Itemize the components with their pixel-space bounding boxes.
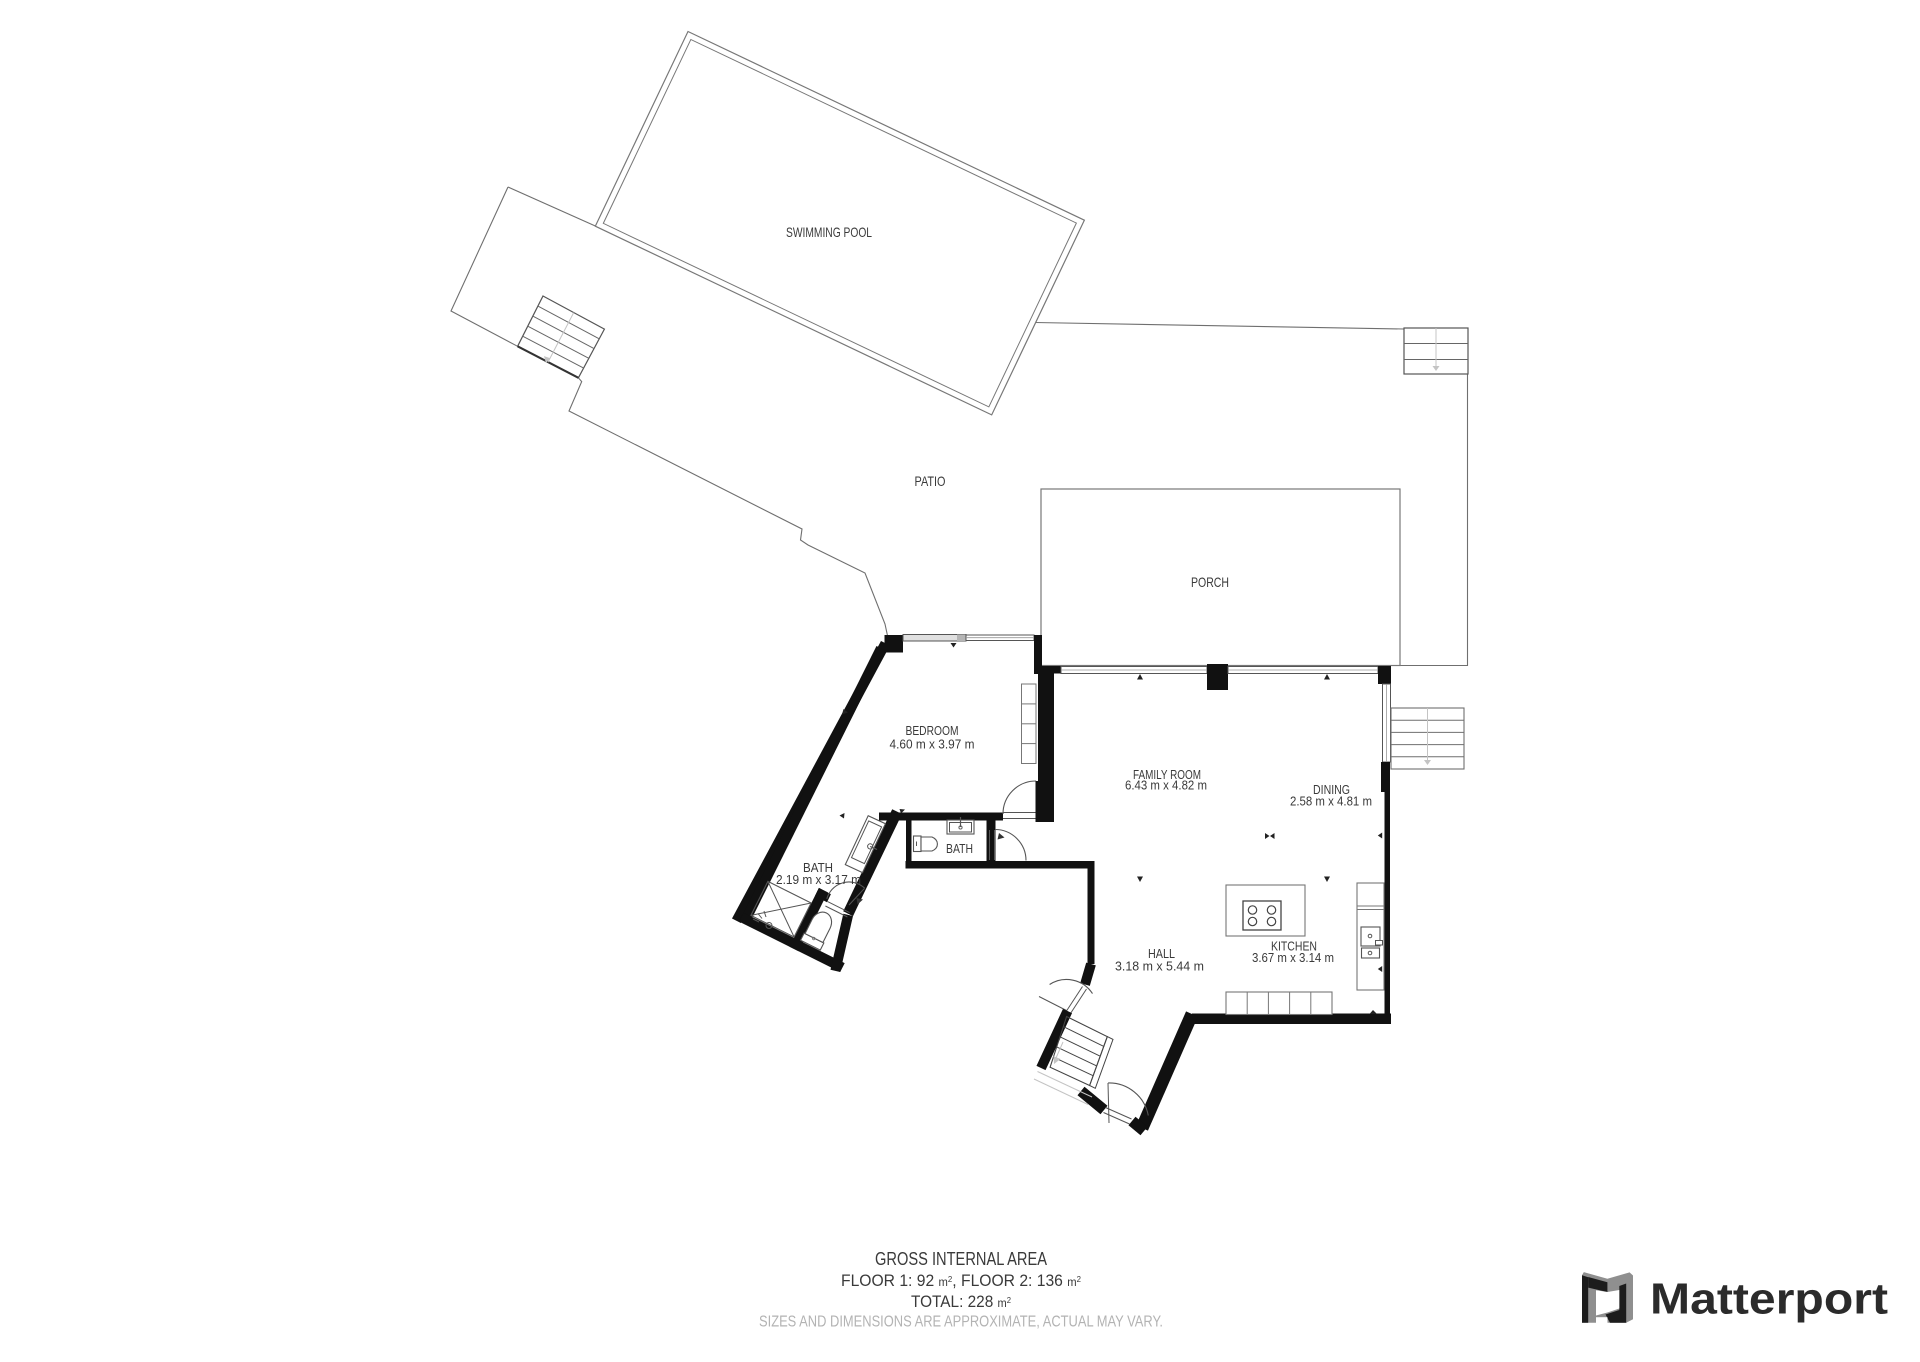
- svg-text:GROSS INTERNAL AREA: GROSS INTERNAL AREA: [875, 1249, 1047, 1269]
- svg-text:3.18 m x 5.44 m: 3.18 m x 5.44 m: [1115, 960, 1204, 974]
- svg-text:SIZES AND DIMENSIONS ARE APPRO: SIZES AND DIMENSIONS ARE APPROXIMATE, AC…: [759, 1314, 1163, 1331]
- svg-text:6.43 m x 4.82 m: 6.43 m x 4.82 m: [1125, 779, 1207, 793]
- svg-text:3.67 m x 3.14 m: 3.67 m x 3.14 m: [1252, 951, 1334, 965]
- svg-text:2.19 m x 3.17 m: 2.19 m x 3.17 m: [776, 873, 861, 887]
- svg-text:PORCH: PORCH: [1191, 574, 1229, 590]
- svg-text:2.58 m x 4.81 m: 2.58 m x 4.81 m: [1290, 795, 1372, 809]
- svg-text:SWIMMING POOL: SWIMMING POOL: [786, 224, 872, 240]
- svg-text:FLOOR 1: 92 m2, FLOOR 2: 136 m: FLOOR 1: 92 m2, FLOOR 2: 136 m2: [841, 1271, 1081, 1290]
- svg-text:PATIO: PATIO: [915, 473, 946, 489]
- svg-text:BATH: BATH: [946, 841, 973, 856]
- svg-text:4.60 m x 3.97 m: 4.60 m x 3.97 m: [890, 738, 975, 752]
- svg-text:TOTAL: 228 m2: TOTAL: 228 m2: [911, 1292, 1011, 1311]
- svg-text:BEDROOM: BEDROOM: [906, 723, 959, 738]
- svg-text:Matterport: Matterport: [1650, 1275, 1888, 1324]
